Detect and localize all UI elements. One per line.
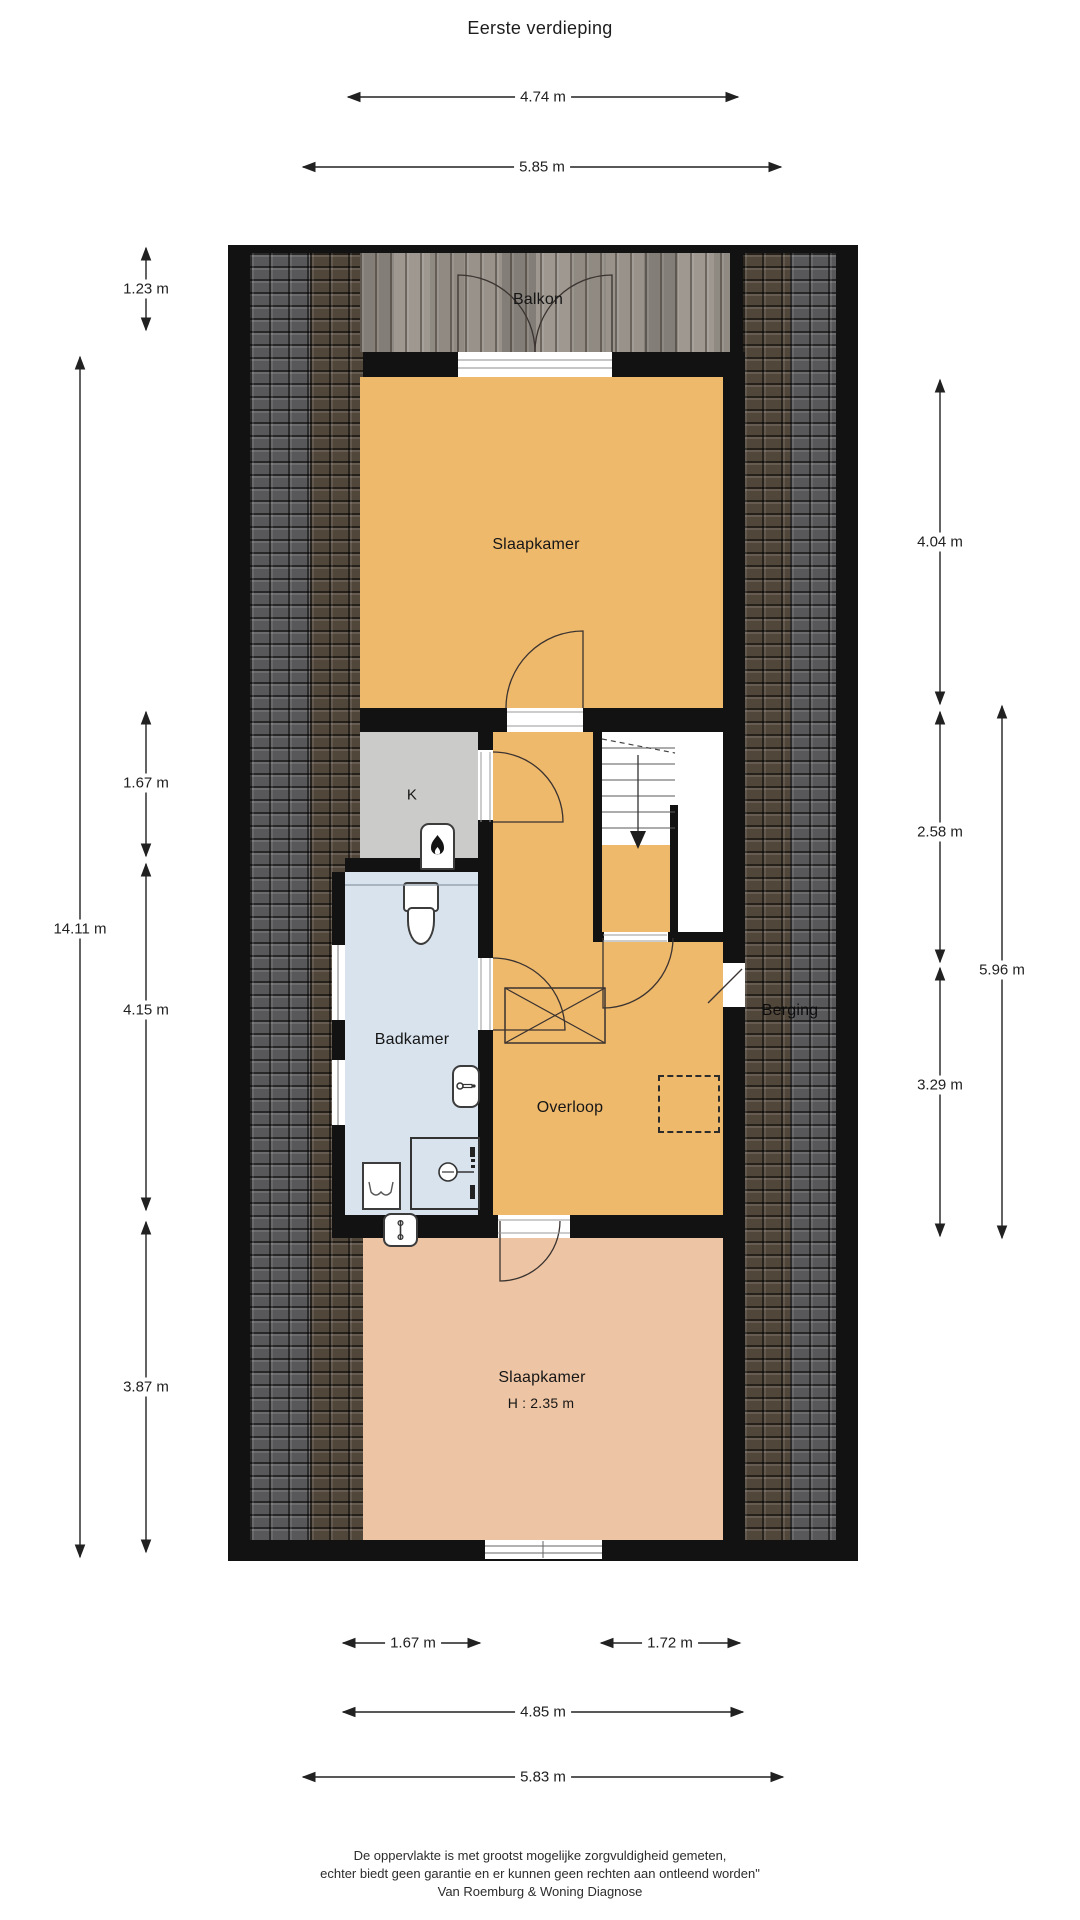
- footer-line-1: De oppervlakte is met grootst mogelijke …: [0, 1847, 1080, 1865]
- room-label-height-note: H : 2.35 m: [508, 1395, 575, 1411]
- roof-tiles-left-outer: [250, 253, 310, 1540]
- wall-badkamer-west: [332, 872, 345, 1215]
- dim-top-inner: 4.74 m: [515, 88, 571, 107]
- dim-left-kast: 1.67 m: [118, 774, 174, 793]
- footer-disclaimer: De oppervlakte is met grootst mogelijke …: [0, 1847, 1080, 1901]
- door-berging-gap: [723, 963, 745, 1007]
- wall-interior-east: [723, 352, 745, 1540]
- room-label-slaapkamer-top: Slaapkamer: [492, 536, 579, 554]
- roof-tiles-right-outer: [790, 253, 836, 1540]
- dim-bottom-badkamer: 1.67 m: [385, 1634, 441, 1653]
- dim-bottom-outer: 5.83 m: [515, 1768, 571, 1787]
- room-label-slaapkamer-bottom: Slaapkamer: [498, 1369, 585, 1387]
- dim-right-stairs: 2.58 m: [912, 823, 968, 842]
- wall-stairs-east: [670, 805, 678, 942]
- window-slaapkamer-bottom: [485, 1540, 602, 1559]
- door-slaapkamer-top: [507, 708, 583, 732]
- footer-line-3: Van Roemburg & Woning Diagnose: [0, 1883, 1080, 1901]
- room-slaapkamer-bottom: [363, 1238, 723, 1540]
- stove-icon: [420, 823, 455, 870]
- room-kast: [360, 732, 478, 858]
- dim-left-bedroom: 3.87 m: [118, 1378, 174, 1397]
- dim-right-total: 5.96 m: [974, 961, 1030, 980]
- hatch-icon: [658, 1075, 720, 1133]
- dim-bottom-inner: 4.85 m: [515, 1703, 571, 1722]
- room-label-badkamer: Badkamer: [375, 1031, 450, 1049]
- room-label-kast: K: [407, 787, 417, 804]
- dim-right-overloop: 3.29 m: [912, 1076, 968, 1095]
- dim-left-total: 14.11 m: [48, 920, 111, 939]
- dim-right-bedroom: 4.04 m: [912, 533, 968, 552]
- door-stairs: [604, 932, 668, 942]
- door-kast: [478, 750, 493, 820]
- stairs-treads-area: [602, 732, 678, 845]
- door-slaapkamer-bottom: [498, 1215, 570, 1238]
- floor-plan: [228, 245, 858, 1561]
- roof-tiles-right-inner: [743, 253, 790, 1540]
- dim-bottom-overloop: 1.72 m: [642, 1634, 698, 1653]
- room-label-berging: Berging: [762, 1002, 819, 1020]
- room-label-overloop: Overloop: [537, 1099, 604, 1117]
- dim-left-badkamer: 4.15 m: [118, 1001, 174, 1020]
- shower-icon: [410, 1137, 480, 1210]
- balcony-french-door: [458, 352, 612, 377]
- washer-icon: [362, 1162, 401, 1210]
- sink-icon: [452, 1065, 480, 1108]
- room-label-balkon: Balkon: [513, 291, 563, 309]
- page-title: Eerste verdieping: [0, 18, 1080, 39]
- floor-plan-page: { "title": "Eerste verdieping", "floor_p…: [0, 0, 1080, 1920]
- footer-line-2: echter biedt geen garantie en er kunnen …: [0, 1865, 1080, 1883]
- stairs-void-area: [678, 732, 723, 932]
- dim-left-balcony: 1.23 m: [118, 280, 174, 299]
- wall-stairs-west: [593, 732, 602, 942]
- door-badkamer: [478, 958, 493, 1030]
- radiator-icon: [383, 1213, 418, 1247]
- window-badkamer-2: [332, 1060, 345, 1125]
- wall-kast-south: [345, 858, 493, 872]
- dim-top-outer: 5.85 m: [514, 158, 570, 177]
- window-badkamer-1: [332, 945, 345, 1020]
